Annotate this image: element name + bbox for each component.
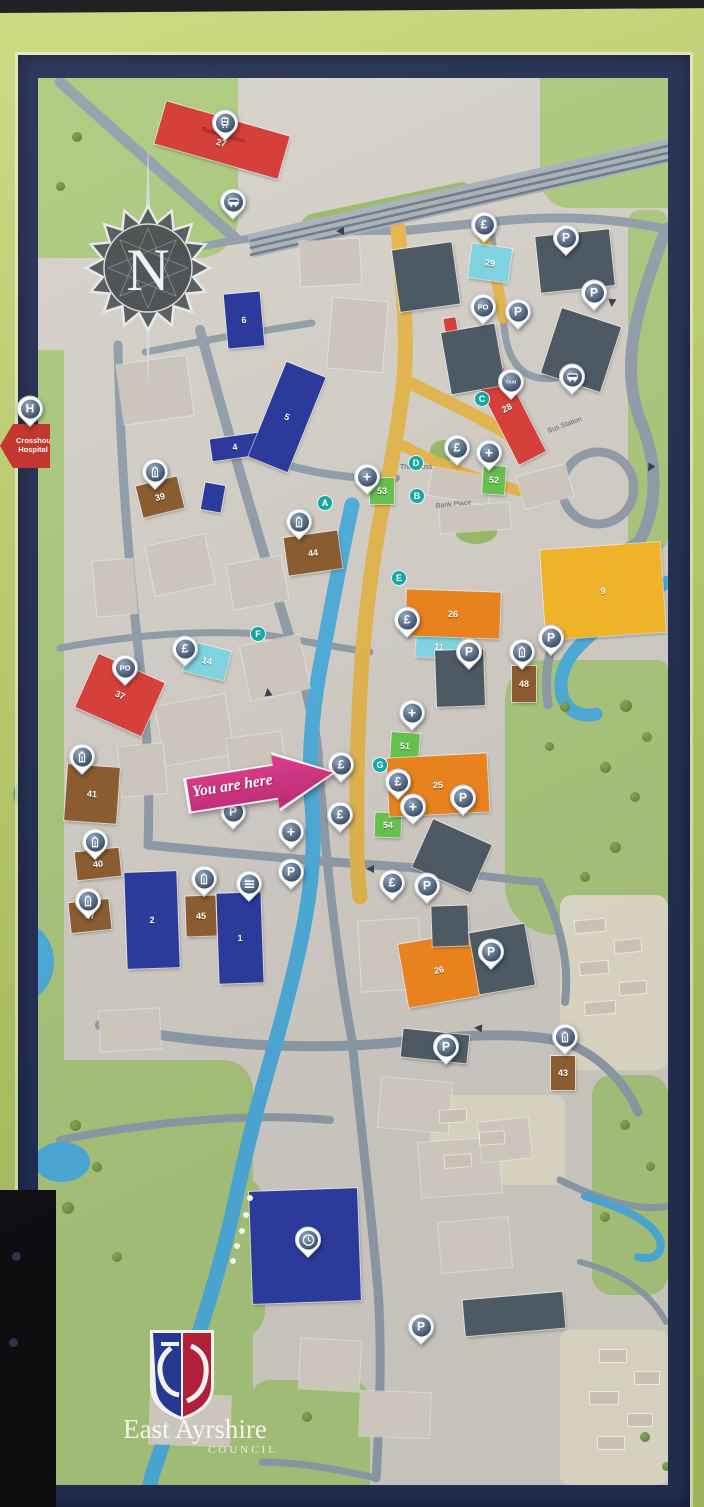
pin-glyph: P [282, 862, 301, 881]
pin-parking-icon: P [412, 871, 442, 905]
city-block [93, 558, 138, 616]
building-45: 45 [185, 895, 216, 936]
pin-glyph: + [358, 467, 377, 486]
pin-glyph: P [454, 788, 473, 807]
pin-taxi-icon: TAXI [496, 367, 526, 401]
compass-north-letter: N [126, 237, 169, 303]
house-row [628, 1414, 652, 1426]
pin-glyph: P [412, 1317, 431, 1336]
tree [545, 742, 554, 751]
city-block [155, 694, 234, 765]
building-number: 41 [87, 789, 98, 799]
building-number: 26 [433, 965, 444, 976]
pin-parking-icon: P [406, 1312, 436, 1346]
sign-photo: N You are here East Ayrshire COUNCIL Rai [0, 0, 704, 1507]
pin-church-icon [550, 1022, 580, 1056]
stepping-stone [239, 1228, 245, 1234]
road-arrow-icon [474, 1024, 483, 1033]
pin-glyph: P [557, 228, 576, 247]
house-row [445, 1154, 472, 1168]
building-43: 43 [551, 1056, 575, 1090]
city-block [327, 298, 388, 373]
pin-parking-icon: P [454, 637, 484, 671]
house-row [620, 981, 647, 995]
pin-pound-icon: £ [442, 433, 472, 467]
building-number: 29 [484, 258, 495, 268]
tree [620, 700, 632, 712]
pin-bus-icon [557, 362, 587, 396]
pin-pound-icon: £ [377, 868, 407, 902]
tree [112, 1252, 122, 1262]
pin-medical-icon: + [352, 462, 382, 496]
route-letter-F: F [250, 626, 266, 642]
pin-glyph [224, 192, 243, 211]
building-number: 25 [433, 780, 443, 790]
pin-glyph: £ [398, 610, 417, 629]
photo-obstruction [0, 1190, 56, 1507]
building-number: 45 [196, 911, 206, 920]
pin-medical-icon: + [474, 438, 504, 472]
pin-clock-icon [293, 1225, 323, 1259]
building-number: 2 [149, 915, 154, 924]
tree [610, 842, 621, 853]
pin-bus-icon [218, 187, 248, 221]
pin-parking-icon: P [579, 278, 609, 312]
hospital-direction-sign: Crosshouse Hospital [0, 424, 50, 468]
pin-parking-icon: P [503, 297, 533, 331]
city-block [299, 1338, 362, 1391]
city-block [378, 1077, 452, 1133]
pin-church-icon [189, 864, 219, 898]
building-number: 52 [489, 475, 500, 485]
building-number: 51 [400, 741, 411, 751]
pin-glyph: + [480, 443, 499, 462]
pin-glyph [290, 512, 309, 531]
council-logo: East Ayrshire COUNCIL [95, 1322, 305, 1457]
city-block [118, 743, 167, 797]
pin-glyph [563, 367, 582, 386]
house-row [440, 1109, 467, 1123]
building-number: 54 [383, 820, 393, 829]
pin-parking-icon: P [551, 223, 581, 257]
pin-glyph [556, 1027, 575, 1046]
pin-glyph: £ [176, 639, 195, 658]
building-block [392, 242, 460, 312]
pin-church-icon [80, 827, 110, 861]
house-row [590, 1392, 618, 1404]
building-number: 9 [600, 586, 606, 595]
tree [620, 1120, 630, 1130]
pin-post-office-icon: PO [110, 653, 140, 687]
city-block [438, 1217, 512, 1273]
pin-church-icon [507, 637, 537, 671]
house-row [600, 1350, 626, 1362]
pin-glyph: H [21, 399, 40, 418]
building-2: 2 [124, 871, 179, 969]
building-number: 28 [500, 402, 513, 415]
pin-glyph [79, 891, 98, 910]
pin-glyph: + [403, 703, 422, 722]
pin-glyph [513, 642, 532, 661]
tree [580, 872, 590, 882]
building-number: 4 [232, 442, 238, 452]
tree [600, 762, 611, 773]
map-frame: N You are here East Ayrshire COUNCIL Rai [18, 55, 690, 1507]
route-letter-D: D [408, 455, 424, 471]
pin-glyph: P [482, 942, 501, 961]
pin-pound-icon: £ [469, 210, 499, 244]
pin-church-icon [140, 457, 170, 491]
pin-parking-icon: P [476, 937, 506, 971]
tree [640, 1432, 650, 1442]
tree [600, 1212, 610, 1222]
pin-train-icon [210, 108, 240, 142]
pin-glyph: P [585, 283, 604, 302]
house-row [480, 1131, 505, 1145]
stepping-stone [243, 1212, 249, 1218]
photo-top-edge [0, 0, 704, 13]
pin-post-office-icon: PO [468, 292, 498, 326]
pin-glyph: £ [448, 438, 467, 457]
town-map: N You are here East Ayrshire COUNCIL Rai [38, 78, 668, 1485]
pin-glyph [86, 832, 105, 851]
building-number: 44 [307, 548, 318, 558]
city-block [299, 238, 361, 286]
pin-glyph: P [460, 642, 479, 661]
pin-glyph [195, 869, 214, 888]
building-number: 1 [237, 933, 242, 942]
tree [560, 702, 570, 712]
building-number: 43 [558, 1069, 568, 1078]
pin-glyph: + [404, 797, 423, 816]
house-row [635, 1372, 659, 1384]
building-number: 14 [201, 655, 213, 666]
pin-glyph: P [542, 628, 561, 647]
building-number: 48 [519, 680, 529, 689]
pin-glyph: £ [383, 873, 402, 892]
pin-glyph [299, 1230, 318, 1249]
pin-church-icon [67, 742, 97, 776]
road-arrow-icon [263, 687, 272, 696]
pin-church-icon [284, 507, 314, 541]
building-block [431, 905, 468, 946]
pin-glyph: + [282, 822, 301, 841]
house-row [615, 939, 642, 953]
stepping-stone [230, 1258, 236, 1264]
tree [70, 1120, 81, 1131]
building-number: 5 [283, 412, 291, 422]
pin-glyph [73, 747, 92, 766]
council-name: East Ayrshire [123, 1414, 267, 1444]
pin-glyph: PO [116, 658, 135, 677]
building-29: 29 [468, 243, 512, 282]
pin-glyph: £ [389, 772, 408, 791]
road-arrow-icon [336, 227, 344, 235]
tree [646, 1162, 655, 1171]
pin-glyph [240, 874, 259, 893]
tree [62, 1202, 74, 1214]
house-row [580, 961, 609, 975]
council-subtitle: COUNCIL [208, 1444, 278, 1456]
pin-parking-icon: P [536, 623, 566, 657]
building-1: 1 [216, 892, 263, 983]
road-arrow-icon [366, 865, 374, 873]
pin-hospital-icon: H [15, 394, 45, 428]
building-number: 37 [114, 689, 127, 701]
pin-medical-icon: + [398, 792, 428, 826]
route-letter-B: B [409, 488, 425, 504]
pin-church-icon [73, 886, 103, 920]
pin-medical-icon: + [276, 817, 306, 851]
compass-rose: N [48, 138, 248, 398]
building-51: 51 [390, 732, 420, 760]
pin-glyph [216, 113, 235, 132]
pin-medical-icon: + [397, 698, 427, 732]
pin-glyph: £ [331, 805, 350, 824]
pin-parking-icon: P [276, 857, 306, 891]
city-block [359, 1391, 431, 1438]
route-letter-C: C [474, 391, 490, 407]
pin-glyph: P [509, 302, 528, 321]
pin-glyph: P [418, 876, 437, 895]
pin-parking-icon: P [448, 783, 478, 817]
tree [642, 732, 652, 742]
tree [662, 1462, 668, 1471]
tree [92, 1162, 102, 1172]
pin-library-icon [234, 869, 264, 903]
pin-parking-icon: P [431, 1032, 461, 1066]
pin-glyph: £ [475, 215, 494, 234]
city-block [99, 1008, 161, 1051]
route-letter-E: E [391, 570, 407, 586]
pin-glyph: P [437, 1037, 456, 1056]
building-number: 39 [154, 491, 166, 502]
route-letter-A: A [317, 495, 333, 511]
hospital-sign-label: Crosshouse Hospital [16, 437, 50, 454]
building-48: 48 [512, 666, 536, 702]
pin-pound-icon: £ [325, 800, 355, 834]
pin-glyph [146, 462, 165, 481]
building-number: 26 [448, 609, 458, 618]
pin-pound-icon: £ [170, 634, 200, 668]
stepping-stone [247, 1195, 253, 1201]
city-block [227, 556, 289, 610]
house-row [598, 1437, 624, 1449]
tree [630, 792, 640, 802]
pin-glyph: TAXI [502, 372, 521, 391]
pin-glyph: PO [474, 297, 493, 316]
stepping-stone [234, 1243, 240, 1249]
pin-pound-icon: £ [392, 605, 422, 639]
